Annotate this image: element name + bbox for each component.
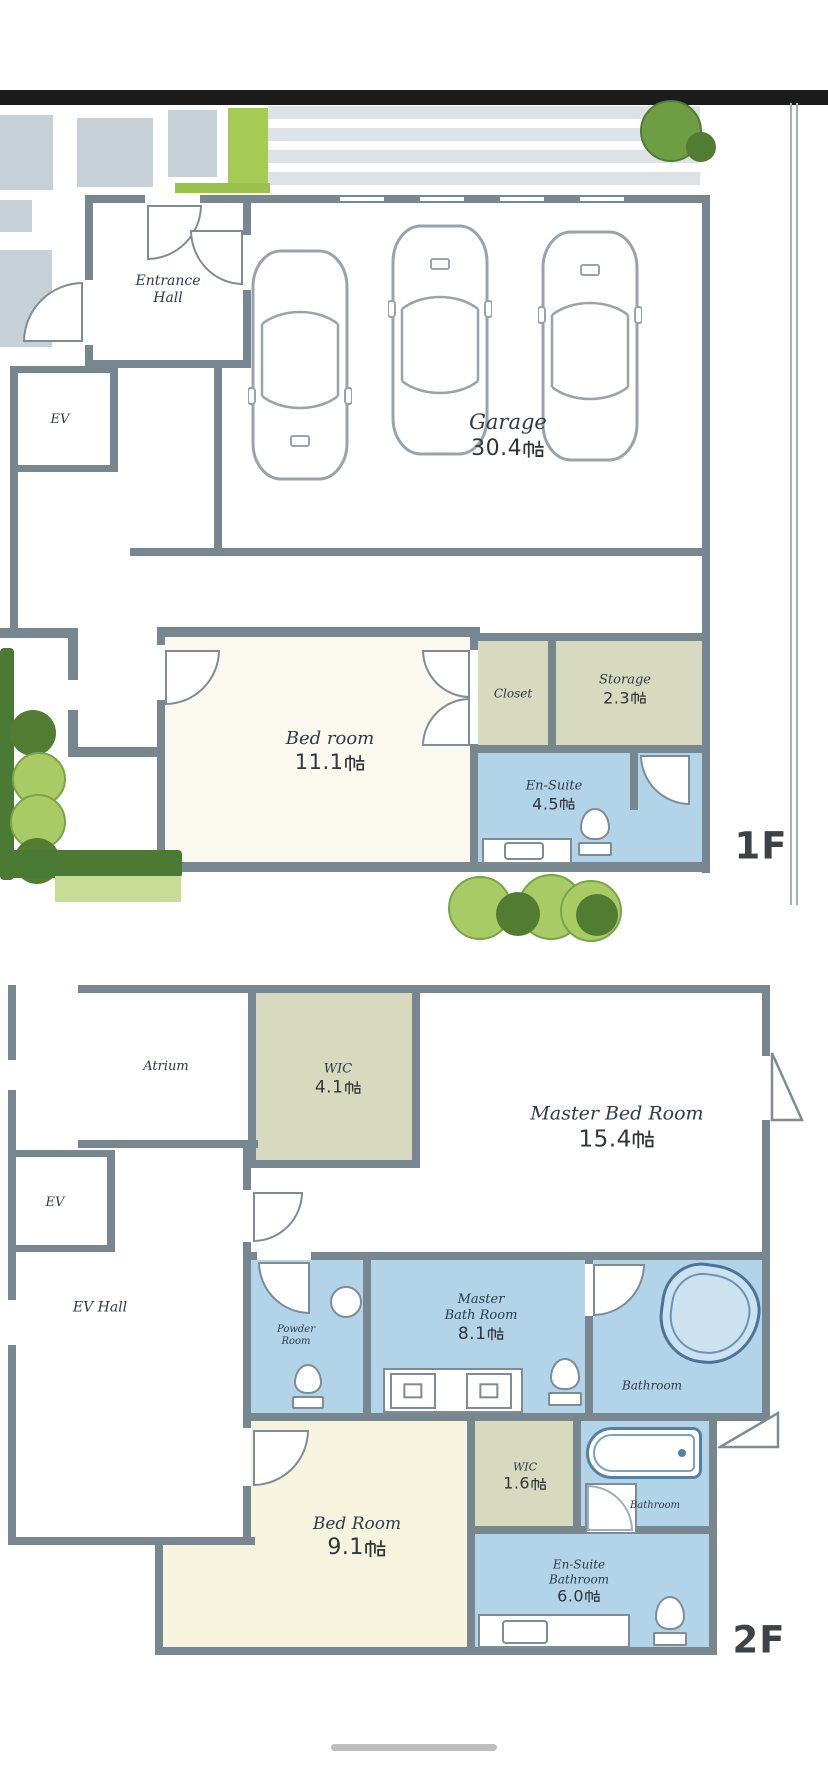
jou-unit-icon <box>487 1326 504 1342</box>
wall <box>78 985 770 993</box>
master-bathroom-label: Master Bath Room 8.1 <box>445 1292 518 1344</box>
wall <box>243 1413 770 1421</box>
jou-unit-icon <box>633 1129 656 1151</box>
wall <box>762 985 770 1421</box>
ev-hall-label: EV Hall <box>73 1299 127 1316</box>
wic-small-label: WIC 1.6 <box>503 1461 547 1494</box>
window <box>8 1060 16 1090</box>
wall <box>155 1537 163 1655</box>
bedroom-2f-label: Bed Room 9.1 <box>313 1514 401 1562</box>
door-swing-marker <box>770 1052 804 1124</box>
wall <box>709 1413 717 1655</box>
door-arc <box>253 1192 303 1242</box>
jou-unit-icon <box>344 1080 361 1096</box>
bathroom-main-label: Bathroom <box>622 1379 682 1394</box>
door-opening <box>257 1252 311 1260</box>
window <box>8 1300 16 1345</box>
door-opening <box>243 1428 251 1486</box>
wall <box>248 1160 420 1168</box>
atrium-label: Atrium <box>143 1059 188 1075</box>
powder-room-label: Powder Room <box>277 1324 315 1348</box>
bathtub-icon <box>586 1427 702 1479</box>
wall <box>248 993 256 1168</box>
elevator-2f-label: EV <box>46 1195 65 1211</box>
floor2-plan: Atrium WIC 4.1 Master Bed Room 15.4 EV E… <box>0 0 828 1792</box>
wall <box>78 1140 258 1148</box>
sink-icon <box>390 1373 436 1409</box>
sink-icon <box>502 1620 548 1644</box>
jou-unit-icon <box>531 1476 547 1491</box>
wall <box>8 1537 255 1545</box>
toilet-icon <box>547 1358 583 1412</box>
wall <box>155 1647 717 1655</box>
master-bedroom-label: Master Bed Room 15.4 <box>530 1102 703 1153</box>
toilet-icon <box>652 1596 688 1652</box>
ensuite-bathroom-label: En-Suite Bathroom 6.0 <box>549 1558 609 1607</box>
washbasin-counter <box>478 1614 630 1648</box>
door-opening <box>762 1056 770 1120</box>
toilet-icon <box>291 1364 325 1414</box>
wall <box>412 985 420 1168</box>
wall <box>8 1150 115 1157</box>
wall <box>107 1150 115 1252</box>
jou-unit-icon <box>365 1538 387 1559</box>
wall <box>467 1421 475 1655</box>
door-opening <box>243 1190 251 1242</box>
sink-icon <box>466 1373 512 1409</box>
bathroom-small-label: Bathroom <box>630 1500 680 1512</box>
round-basin-icon <box>330 1286 362 1318</box>
wic-large-label: WIC 4.1 <box>315 1062 361 1099</box>
wall <box>363 1260 371 1421</box>
wall <box>573 1421 581 1534</box>
door-opening <box>585 1264 593 1316</box>
floorplan-canvas: Entrance Hall EV Garage 30.4 Bed room 11… <box>0 0 828 1792</box>
home-indicator[interactable] <box>331 1744 497 1751</box>
step-marker <box>718 1410 782 1450</box>
jou-unit-icon <box>585 1589 601 1604</box>
wall <box>8 1245 115 1252</box>
wall <box>243 1252 770 1260</box>
floor2-tag: 2F <box>732 1619 785 1662</box>
